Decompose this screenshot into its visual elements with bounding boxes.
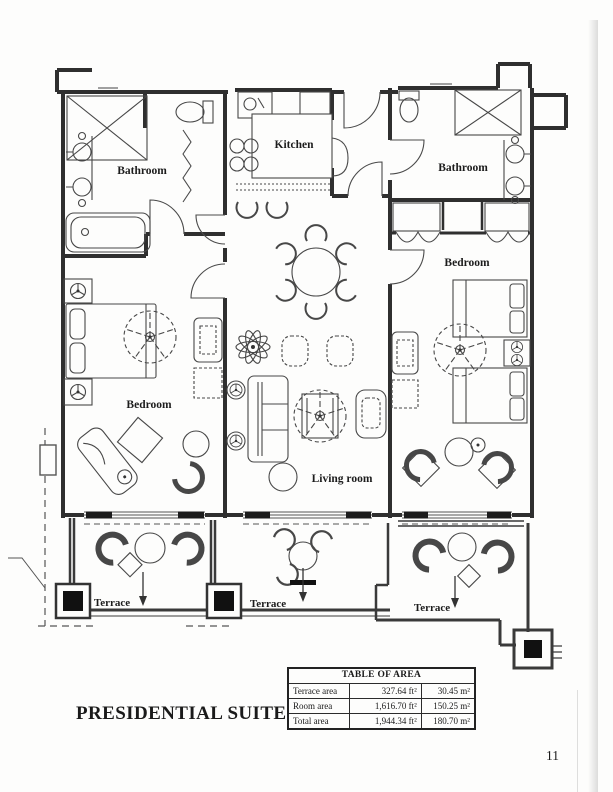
area-row-ft: 1,616.70 ft²	[350, 699, 422, 714]
plant-icon	[236, 329, 270, 365]
bathroom-right-label: Bathroom	[438, 162, 488, 174]
area-row-ft: 327.64 ft²	[350, 684, 422, 699]
bedroom-right-furniture	[392, 280, 530, 488]
bathroom-left-label: Bathroom	[117, 165, 167, 177]
terrace-arrow-icons	[139, 568, 459, 608]
kitchen-label: Kitchen	[275, 139, 315, 151]
table-row: Total area 1,944.34 ft² 180.70 m²	[288, 714, 475, 730]
bedroom-right-label: Bedroom	[444, 257, 490, 269]
bathroom-right-fixtures	[393, 90, 531, 231]
bedroom-left-label: Bedroom	[126, 399, 172, 411]
living-room-furniture	[227, 225, 386, 491]
area-row-m: 180.70 m²	[421, 714, 475, 730]
area-table-title: TABLE OF AREA	[288, 668, 475, 684]
terrace-walls	[56, 518, 562, 668]
table-row: Terrace area 327.64 ft² 30.45 m²	[288, 684, 475, 699]
page-number: 11	[546, 748, 559, 764]
kitchen-fixtures	[230, 92, 332, 218]
terrace-left-label: Terrace	[94, 597, 130, 609]
area-table: TABLE OF AREA Terrace area 327.64 ft² 30…	[287, 667, 476, 730]
area-row-label: Room area	[288, 699, 350, 714]
scan-edge-line	[577, 690, 578, 792]
terrace-right-label: Terrace	[414, 602, 450, 614]
terrace-middle-label: Terrace	[250, 598, 286, 610]
area-row-m: 30.45 m²	[421, 684, 475, 699]
bedroom-left-furniture	[64, 279, 222, 498]
scanned-page: Bathroom Kitchen Bathroom Bedroom Living…	[0, 0, 613, 792]
area-row-label: Total area	[288, 714, 350, 730]
living-room-label: Living room	[312, 473, 373, 485]
table-row: Room area 1,616.70 ft² 150.25 m²	[288, 699, 475, 714]
area-row-ft: 1,944.34 ft²	[350, 714, 422, 730]
page-title: PRESIDENTIAL SUITE	[76, 703, 276, 725]
scan-edge-shadow	[588, 20, 598, 792]
area-row-label: Terrace area	[288, 684, 350, 699]
area-row-m: 150.25 m²	[421, 699, 475, 714]
terrace-furniture	[93, 525, 517, 589]
